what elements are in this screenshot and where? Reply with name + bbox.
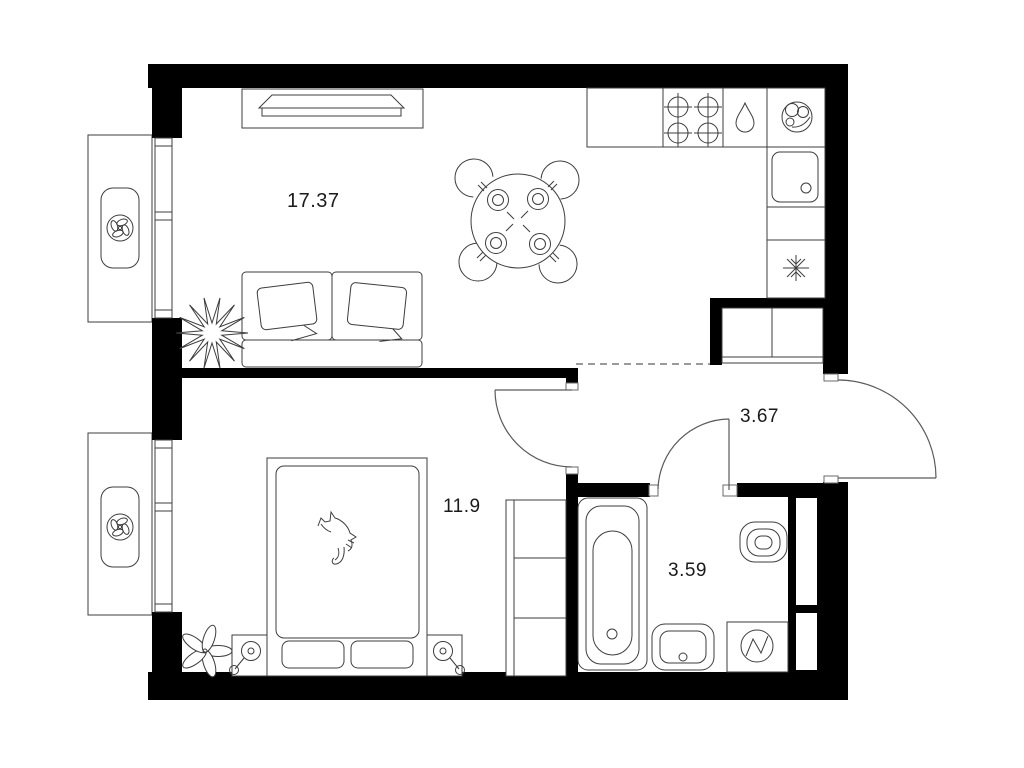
balcony-bedroom [88, 433, 152, 615]
nightstand-left [230, 635, 268, 676]
bed-icon [267, 458, 427, 676]
nightstand-right [427, 635, 465, 676]
dining-set [447, 151, 587, 291]
flower-icon [180, 624, 232, 679]
room-label-living: 17.37 [287, 190, 340, 212]
door-swing-icon [658, 419, 729, 489]
entrance-door [824, 374, 936, 483]
entry-closet-wardrobe [722, 308, 823, 363]
floor-plan-canvas: 17.37 11.9 3.67 3.59 [0, 0, 1024, 768]
sofa-icon [242, 272, 422, 367]
room-label-hallway: 3.67 [740, 406, 779, 427]
fan-icon [107, 514, 133, 540]
bathroom-door [649, 419, 737, 496]
utility-shaft [796, 498, 817, 670]
door-swing-icon [838, 380, 936, 478]
bathtub-icon [578, 498, 647, 670]
floor-plan: 17.37 11.9 3.67 3.59 [0, 0, 1024, 768]
balcony-living [88, 135, 152, 322]
dining-table-icon [471, 174, 565, 268]
wardrobe-icon [506, 500, 566, 676]
plant-icon [176, 298, 248, 368]
window-living [155, 138, 172, 318]
window-bedroom [155, 440, 172, 612]
bedroom-door [495, 383, 578, 474]
washbasin-icon [652, 624, 714, 670]
kitchen-counter [587, 88, 825, 298]
washing-machine-icon [727, 622, 788, 672]
fan-icon [107, 215, 133, 241]
door-swing-icon [495, 390, 572, 467]
exterior-walls [148, 64, 848, 700]
room-label-bathroom: 3.59 [668, 560, 707, 581]
tv-stand [242, 89, 423, 128]
toilet-icon [740, 522, 787, 562]
room-label-bedroom: 11.9 [443, 496, 481, 517]
